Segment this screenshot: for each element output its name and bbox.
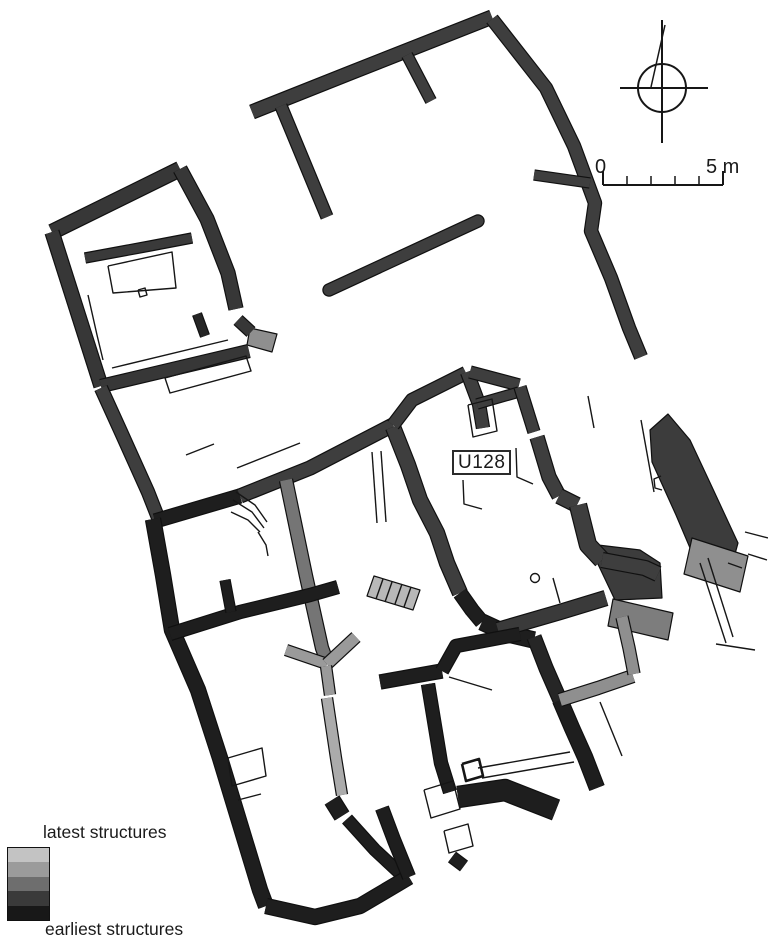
staircase: [367, 576, 420, 610]
legend-band: [8, 862, 49, 876]
wall-segment: [326, 666, 330, 695]
wall-segment: [578, 505, 602, 560]
detail-line: [463, 480, 482, 509]
wall-segment: [332, 800, 342, 816]
wall-segment: [559, 496, 577, 505]
legend-band: [8, 906, 49, 920]
detail-line: [108, 252, 176, 293]
wall-segment: [407, 55, 431, 101]
site-plan: [0, 0, 768, 945]
detail-line: [449, 677, 492, 690]
wall-segment: [537, 437, 559, 496]
legend-label-latest: latest structures: [43, 822, 167, 843]
detail-line: [600, 702, 622, 756]
wall-segment: [252, 17, 492, 112]
detail-line: [716, 644, 755, 650]
detail-line: [237, 443, 300, 468]
wall-segment: [560, 700, 597, 788]
wall-segment: [286, 480, 328, 664]
detail-line: [516, 448, 533, 484]
legend-band: [8, 891, 49, 905]
detail-line: [444, 824, 473, 853]
wall-segment: [477, 392, 519, 404]
detail-line: [462, 759, 483, 781]
wall-segment: [155, 496, 240, 521]
wall-segment: [101, 388, 159, 520]
wall-segment: [520, 387, 534, 432]
wall-segment: [498, 598, 606, 630]
legend-band: [8, 877, 49, 891]
detail-line: [186, 444, 214, 455]
legend-label-earliest: earliest structures: [45, 919, 183, 940]
detail-line: [372, 452, 377, 523]
wall-segment: [281, 106, 327, 217]
wall-segment: [266, 877, 409, 917]
scale-bar-zero-label: 0: [595, 156, 606, 179]
wall-segment: [225, 580, 231, 612]
legend-band: [8, 848, 49, 862]
site-plan-figure: U128 0 5 m latest structures earliest st…: [0, 0, 768, 945]
wall-segment: [240, 425, 393, 496]
detail-line: [748, 554, 767, 560]
wall-segment: [153, 519, 266, 906]
fill-patch: [247, 328, 277, 352]
wall-segment: [452, 857, 464, 866]
wall-segment: [197, 314, 205, 336]
wall-segment: [327, 637, 356, 664]
wall-segment: [329, 221, 478, 290]
detail-line: [258, 532, 268, 556]
wall-segment: [52, 169, 180, 232]
u128-room-label: U128: [452, 450, 511, 475]
detail-line: [231, 512, 260, 532]
detail-line: [238, 794, 261, 800]
scale-bar-5m-label: 5 m: [706, 156, 739, 179]
wall-segment: [492, 19, 641, 357]
wall-segment: [101, 351, 249, 386]
detail-line: [588, 396, 594, 428]
wall-segment: [560, 676, 633, 700]
wall-segment: [85, 238, 192, 258]
detail-line: [381, 451, 386, 522]
detail-circle: [531, 574, 540, 583]
detail-line: [745, 532, 768, 538]
wall-segment: [534, 637, 560, 700]
legend-swatch-gradient: [7, 847, 50, 921]
wall-segment: [428, 684, 450, 792]
detail-line: [138, 288, 147, 297]
detail-line: [553, 578, 560, 603]
wall-segment: [393, 427, 460, 593]
